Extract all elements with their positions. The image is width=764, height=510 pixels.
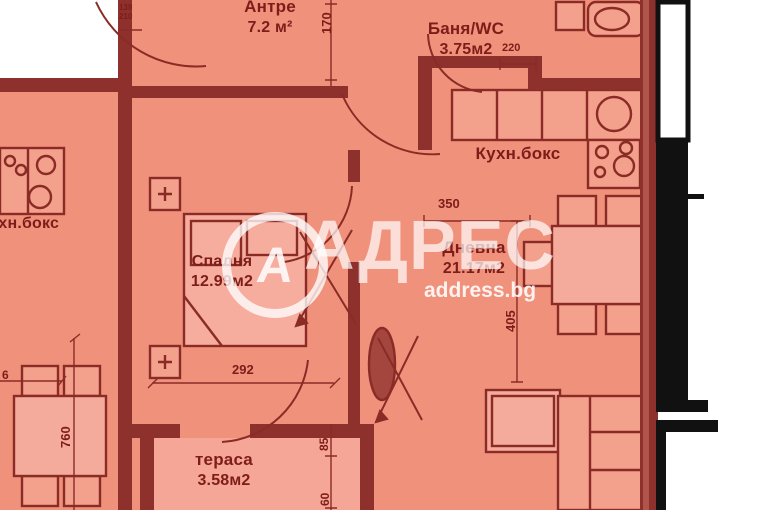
watermark-brand: АДРЕС xyxy=(304,210,556,280)
room-name: Баня/WC xyxy=(428,19,504,38)
dimension-292: 292 xyxy=(232,362,254,377)
dimension-85: 85 xyxy=(317,438,331,451)
room-name: Антре xyxy=(244,0,296,16)
dimension-405: 405 xyxy=(503,310,518,332)
room-label-neighbor-kitchen: кухн.бокс xyxy=(0,214,70,234)
room-area: 7.2 м² xyxy=(228,18,312,38)
neighbor-kitchen-unit xyxy=(0,148,64,214)
watermark-site: address.bg xyxy=(424,280,536,301)
room-name: кухн.бокс xyxy=(0,215,59,232)
watermark-logo-letter: А xyxy=(254,240,295,290)
dimension-760: 760 xyxy=(58,426,73,448)
room-name: тераса xyxy=(195,450,253,469)
window-marker: 139 210 xyxy=(119,4,132,22)
dimension-6: 6 xyxy=(2,368,9,382)
room-label-terrace: тераса 3.58м2 xyxy=(164,450,284,490)
dimension-60: 60 xyxy=(318,493,332,506)
floor-plan-image: Антре 7.2 м² Баня/WC 3.75м2 Кухн.бокс Дн… xyxy=(0,0,764,510)
room-area: 3.58м2 xyxy=(164,471,284,491)
dimension-220: 220 xyxy=(502,42,520,54)
window-marker-bottom: 210 xyxy=(119,13,132,22)
room-label-kitchen: Кухн.бокс xyxy=(462,144,574,165)
dimension-170: 170 xyxy=(319,12,334,34)
apartment-divider-wall xyxy=(118,78,132,510)
bathroom-fixtures xyxy=(556,2,644,36)
room-name: Кухн.бокс xyxy=(476,144,561,163)
room-label-antre: Антре 7.2 м² xyxy=(228,0,312,37)
